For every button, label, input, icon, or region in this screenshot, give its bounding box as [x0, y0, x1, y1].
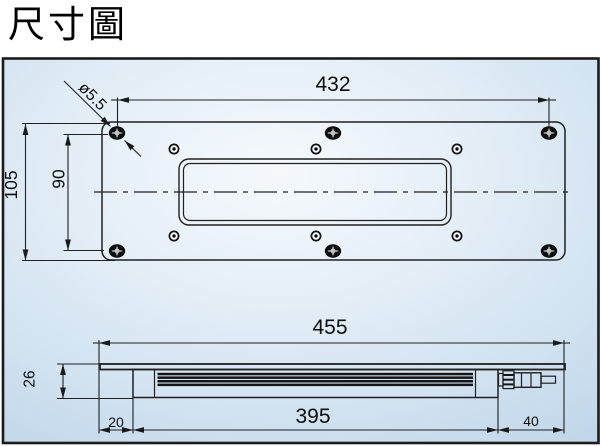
screw-hole [311, 231, 320, 240]
mounting-hole [541, 244, 557, 258]
screw-hole [452, 144, 461, 153]
mounting-hole [109, 126, 125, 140]
dim-40-label: 40 [523, 413, 539, 429]
dim-432-label: 432 [315, 73, 350, 96]
screw-hole [452, 231, 461, 240]
dim-20-label: 20 [108, 414, 124, 430]
dimension-drawing-page: 尺寸圖 [0, 0, 602, 447]
dimension-drawing: 432 105 90 ø5.5 [0, 0, 602, 447]
dim-105-label: 105 [1, 170, 21, 199]
mounting-hole [109, 244, 125, 258]
mounting-hole [325, 244, 341, 258]
screw-hole [311, 144, 320, 153]
dim-26-label: 26 [22, 370, 39, 387]
dim-90-label: 90 [49, 169, 69, 189]
mounting-hole [325, 126, 341, 140]
mounting-hole [541, 126, 557, 140]
screw-hole [169, 144, 178, 153]
screw-hole [169, 231, 178, 240]
dim-455-label: 455 [312, 316, 347, 339]
dim-395-label: 395 [295, 405, 330, 428]
